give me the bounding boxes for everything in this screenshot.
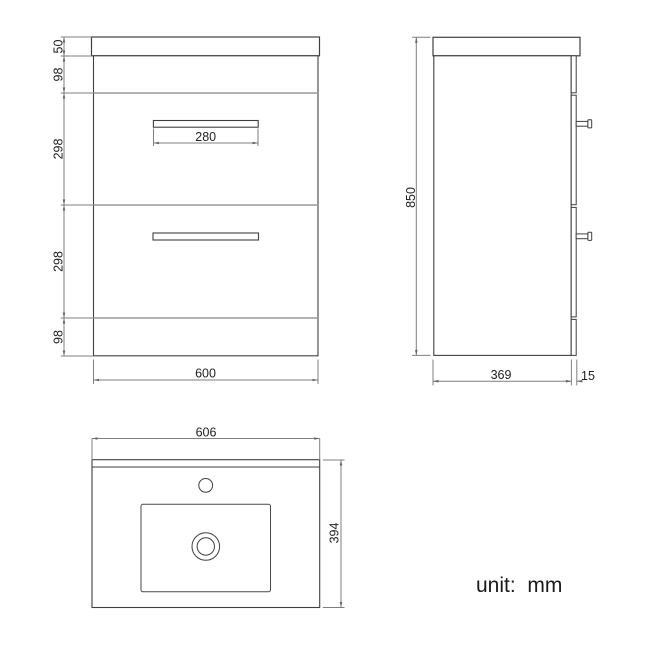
svg-text:98: 98 (52, 68, 66, 82)
svg-text:298: 298 (52, 139, 66, 160)
svg-text:unit: mm: unit: mm (476, 574, 562, 597)
svg-text:850: 850 (404, 187, 418, 208)
svg-text:280: 280 (195, 130, 216, 144)
svg-text:369: 369 (491, 368, 512, 382)
svg-text:50: 50 (52, 40, 66, 54)
svg-text:15: 15 (581, 369, 595, 383)
svg-text:606: 606 (196, 426, 217, 440)
svg-text:600: 600 (195, 367, 216, 381)
svg-text:98: 98 (52, 330, 66, 344)
svg-text:298: 298 (52, 251, 66, 272)
svg-text:394: 394 (328, 523, 342, 544)
